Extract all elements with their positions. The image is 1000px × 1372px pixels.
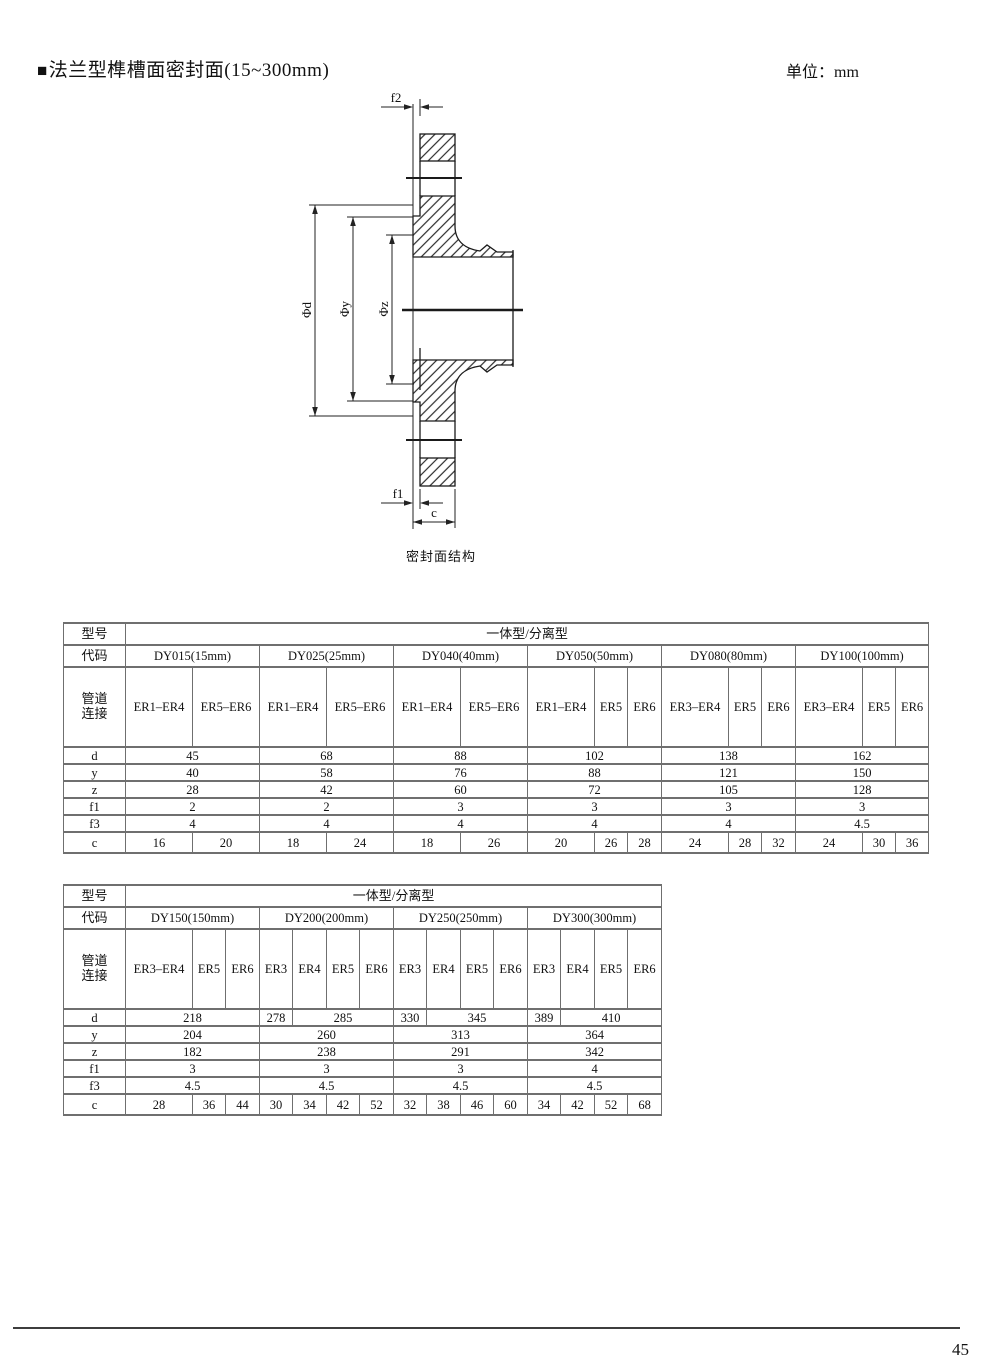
value-cell: 182: [126, 1043, 260, 1060]
value-cell: 28: [126, 1094, 193, 1115]
row-header-c: c: [64, 1094, 126, 1115]
code-cell: DY025(25mm): [260, 645, 394, 667]
value-cell: 45: [126, 747, 260, 764]
value-cell: 76: [394, 764, 528, 781]
value-cell: 42: [561, 1094, 595, 1115]
pipe-cell: ER6: [494, 929, 528, 1009]
dim-label-phi-z: Φz: [376, 301, 391, 317]
pipe-cell: ER6: [896, 667, 929, 747]
value-cell: 389: [528, 1009, 561, 1026]
pipe-cell: ER4: [293, 929, 327, 1009]
flange-section-drawing: f2 f1 c Φd Φy Φz 密封面结构: [285, 85, 715, 575]
value-cell: 2: [260, 798, 394, 815]
value-cell: 4.5: [528, 1077, 662, 1094]
code-cell: DY015(15mm): [126, 645, 260, 667]
pipe-cell: ER3: [260, 929, 293, 1009]
pipe-cell: ER1–ER4: [260, 667, 327, 747]
value-cell: 40: [126, 764, 260, 781]
value-cell: 72: [528, 781, 662, 798]
pipe-cell: ER3–ER4: [126, 929, 193, 1009]
code-cell: DY300(300mm): [528, 907, 662, 929]
value-cell: 238: [260, 1043, 394, 1060]
dim-label-f2: f2: [391, 90, 402, 105]
value-cell: 4.5: [260, 1077, 394, 1094]
value-cell: 3: [796, 798, 929, 815]
value-cell: 105: [662, 781, 796, 798]
pipe-cell: ER6: [628, 929, 662, 1009]
code-cell: DY200(200mm): [260, 907, 394, 929]
value-cell: 4.5: [126, 1077, 260, 1094]
value-cell: 3: [394, 1060, 528, 1077]
value-cell: 4.5: [394, 1077, 528, 1094]
row-header-c: c: [64, 832, 126, 853]
pipe-label-line2: 连接: [64, 969, 125, 984]
value-cell: 2: [126, 798, 260, 815]
dim-label-phi-y: Φy: [337, 301, 352, 318]
unit-label: 单位：mm: [786, 58, 859, 82]
value-cell: 28: [126, 781, 260, 798]
pipe-cell: ER6: [360, 929, 394, 1009]
pipe-cell: ER3–ER4: [662, 667, 729, 747]
row-header-d: d: [64, 1009, 126, 1026]
value-cell: 4.5: [796, 815, 929, 832]
value-cell: 3: [126, 1060, 260, 1077]
value-cell: 4: [528, 815, 662, 832]
value-cell: 162: [796, 747, 929, 764]
value-cell: 26: [595, 832, 628, 853]
value-cell: 30: [260, 1094, 293, 1115]
value-cell: 4: [528, 1060, 662, 1077]
value-cell: 16: [126, 832, 193, 853]
value-cell: 121: [662, 764, 796, 781]
row-header-f1: f1: [64, 798, 126, 815]
pipe-cell: ER5: [729, 667, 762, 747]
pipe-cell: ER1–ER4: [126, 667, 193, 747]
value-cell: 102: [528, 747, 662, 764]
dim-label-c: c: [431, 505, 437, 520]
pipe-cell: ER6: [226, 929, 260, 1009]
value-cell: 18: [260, 832, 327, 853]
table-row: z182238291342: [64, 1043, 662, 1060]
value-cell: 3: [528, 798, 662, 815]
row-header-z: z: [64, 781, 126, 798]
page-title: ■法兰型榫槽面密封面(15~300mm): [37, 55, 329, 82]
table-row: f34.54.54.54.5: [64, 1077, 662, 1094]
table-row: 管道连接 ER3–ER4ER5ER6 ER3ER4ER5ER6 ER3ER4ER…: [64, 929, 662, 1009]
table-row: d 218 278285 330345 389410: [64, 1009, 662, 1026]
value-cell: 34: [528, 1094, 561, 1115]
code-cell: DY040(40mm): [394, 645, 528, 667]
value-cell: 204: [126, 1026, 260, 1043]
catalog-page: ■法兰型榫槽面密封面(15~300mm) 单位：mm: [0, 0, 1000, 1372]
table-row: 代码 DY015(15mm) DY025(25mm) DY040(40mm) D…: [64, 645, 929, 667]
table-row: z28426072105128: [64, 781, 929, 798]
table-row: y204260313364: [64, 1026, 662, 1043]
value-cell: 28: [628, 832, 662, 853]
table-row: 型号一体型/分离型: [64, 885, 662, 907]
value-cell: 218: [126, 1009, 260, 1026]
value-cell: 52: [595, 1094, 628, 1115]
row-header-y: y: [64, 1026, 126, 1043]
value-cell: 128: [796, 781, 929, 798]
value-cell: 4: [126, 815, 260, 832]
code-cell: DY080(80mm): [662, 645, 796, 667]
table-row: 型号一体型/分离型: [64, 623, 929, 645]
value-cell: 24: [327, 832, 394, 853]
pipe-cell: ER3: [528, 929, 561, 1009]
value-cell: 3: [394, 798, 528, 815]
value-cell: 4: [394, 815, 528, 832]
value-cell: 3: [260, 1060, 394, 1077]
pipe-cell: ER3: [394, 929, 427, 1009]
value-cell: 345: [427, 1009, 528, 1026]
value-cell: 46: [461, 1094, 494, 1115]
value-cell: 285: [293, 1009, 394, 1026]
pipe-cell: ER5: [863, 667, 896, 747]
row-header-f3: f3: [64, 815, 126, 832]
pipe-cell: ER1–ER4: [528, 667, 595, 747]
table-row: 代码 DY150(150mm) DY200(200mm) DY250(250mm…: [64, 907, 662, 929]
row-header-f3: f3: [64, 1077, 126, 1094]
row-header-y: y: [64, 764, 126, 781]
row-header-d: d: [64, 747, 126, 764]
value-cell: 138: [662, 747, 796, 764]
row-header-pipe-connection: 管道连接: [64, 667, 126, 747]
row-header-model: 型号: [64, 623, 126, 645]
code-cell: DY050(50mm): [528, 645, 662, 667]
value-cell: 410: [561, 1009, 662, 1026]
pipe-cell: ER5: [595, 929, 628, 1009]
pipe-cell: ER4: [561, 929, 595, 1009]
table-row: f3444444.5: [64, 815, 929, 832]
value-cell: 24: [796, 832, 863, 853]
page-number: 45: [952, 1340, 969, 1360]
table-row: y40587688121150: [64, 764, 929, 781]
dim-label-phi-d: Φd: [299, 302, 314, 319]
value-cell: 38: [427, 1094, 461, 1115]
title-bullet-icon: ■: [37, 61, 48, 80]
row-header-code: 代码: [64, 645, 126, 667]
value-cell: 278: [260, 1009, 293, 1026]
pipe-cell: ER6: [628, 667, 662, 747]
table-row: c 283644 30344252 32384660 34425268: [64, 1094, 662, 1115]
table-row: d456888102138162: [64, 747, 929, 764]
type-span-cell: 一体型/分离型: [126, 885, 662, 907]
row-header-z: z: [64, 1043, 126, 1060]
pipe-cell: ER3–ER4: [796, 667, 863, 747]
value-cell: 291: [394, 1043, 528, 1060]
value-cell: 42: [260, 781, 394, 798]
value-cell: 44: [226, 1094, 260, 1115]
value-cell: 68: [628, 1094, 662, 1115]
pipe-label-line1: 管道: [64, 954, 125, 969]
table-row: f13334: [64, 1060, 662, 1077]
value-cell: 20: [528, 832, 595, 853]
code-cell: DY250(250mm): [394, 907, 528, 929]
value-cell: 88: [394, 747, 528, 764]
dimension-table-dn15-100: 型号一体型/分离型 代码 DY015(15mm) DY025(25mm) DY0…: [63, 622, 929, 854]
code-cell: DY150(150mm): [126, 907, 260, 929]
value-cell: 3: [662, 798, 796, 815]
value-cell: 150: [796, 764, 929, 781]
type-span-cell: 一体型/分离型: [126, 623, 929, 645]
value-cell: 88: [528, 764, 662, 781]
value-cell: 52: [360, 1094, 394, 1115]
value-cell: 28: [729, 832, 762, 853]
pipe-cell: ER5–ER6: [461, 667, 528, 747]
pipe-cell: ER5–ER6: [327, 667, 394, 747]
table-row: f1223333: [64, 798, 929, 815]
row-header-f1: f1: [64, 1060, 126, 1077]
page-title-text: 法兰型榫槽面密封面(15~300mm): [49, 60, 330, 81]
pipe-cell: ER1–ER4: [394, 667, 461, 747]
pipe-cell: ER5: [193, 929, 226, 1009]
pipe-cell: ER6: [762, 667, 796, 747]
dimension-table-dn150-300: 型号一体型/分离型 代码 DY150(150mm) DY200(200mm) D…: [63, 884, 662, 1116]
value-cell: 60: [494, 1094, 528, 1115]
value-cell: 24: [662, 832, 729, 853]
code-cell: DY100(100mm): [796, 645, 929, 667]
row-header-code: 代码: [64, 907, 126, 929]
value-cell: 32: [394, 1094, 427, 1115]
pipe-cell: ER4: [427, 929, 461, 1009]
value-cell: 60: [394, 781, 528, 798]
pipe-label-line2: 连接: [64, 707, 125, 722]
value-cell: 68: [260, 747, 394, 764]
value-cell: 260: [260, 1026, 394, 1043]
value-cell: 4: [260, 815, 394, 832]
table-row: c 1620 1824 1826 202628 242832 243036: [64, 832, 929, 853]
dim-label-f1: f1: [393, 486, 404, 501]
value-cell: 364: [528, 1026, 662, 1043]
value-cell: 342: [528, 1043, 662, 1060]
value-cell: 4: [662, 815, 796, 832]
pipe-cell: ER5: [327, 929, 360, 1009]
value-cell: 330: [394, 1009, 427, 1026]
value-cell: 32: [762, 832, 796, 853]
value-cell: 18: [394, 832, 461, 853]
value-cell: 30: [863, 832, 896, 853]
pipe-cell: ER5–ER6: [193, 667, 260, 747]
value-cell: 26: [461, 832, 528, 853]
row-header-pipe-connection: 管道连接: [64, 929, 126, 1009]
pipe-cell: ER5: [595, 667, 628, 747]
pipe-label-line1: 管道: [64, 692, 125, 707]
value-cell: 42: [327, 1094, 360, 1115]
pipe-cell: ER5: [461, 929, 494, 1009]
row-header-model: 型号: [64, 885, 126, 907]
value-cell: 58: [260, 764, 394, 781]
drawing-caption: 密封面结构: [406, 549, 476, 564]
value-cell: 313: [394, 1026, 528, 1043]
value-cell: 20: [193, 832, 260, 853]
footer-rule: [13, 1327, 960, 1329]
value-cell: 36: [193, 1094, 226, 1115]
value-cell: 36: [896, 832, 929, 853]
table-row: 管道连接 ER1–ER4ER5–ER6 ER1–ER4ER5–ER6 ER1–E…: [64, 667, 929, 747]
value-cell: 34: [293, 1094, 327, 1115]
